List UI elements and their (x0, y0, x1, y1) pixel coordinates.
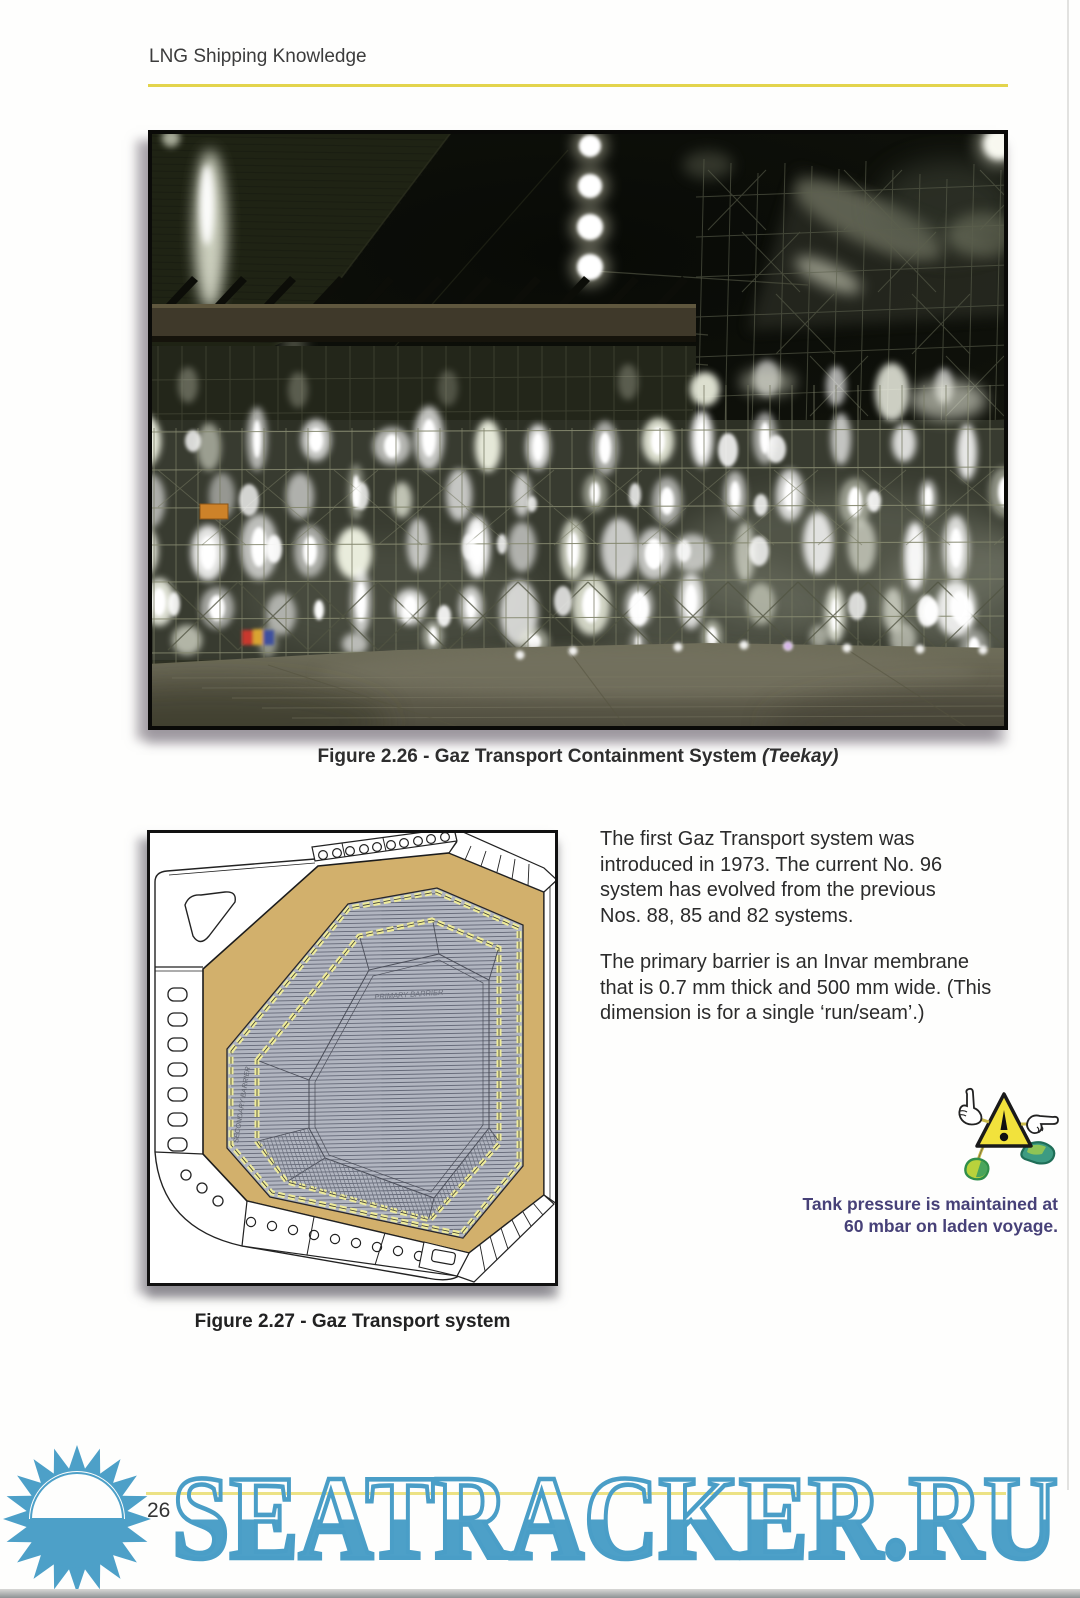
svg-text:SEATRACKER.RU: SEATRACKER.RU (172, 1451, 1058, 1584)
